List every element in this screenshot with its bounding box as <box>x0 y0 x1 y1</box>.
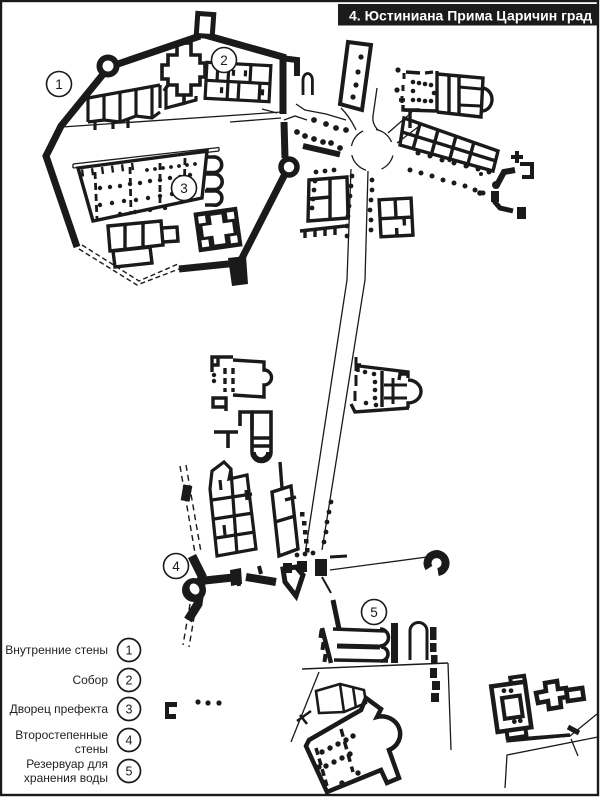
svg-text:2: 2 <box>220 53 228 68</box>
svg-text:3: 3 <box>180 181 188 196</box>
svg-text:хранения воды: хранения воды <box>24 771 108 785</box>
svg-text:2: 2 <box>126 674 133 688</box>
svg-text:1: 1 <box>55 77 63 92</box>
svg-text:Внутренние стены: Внутренние стены <box>5 643 108 657</box>
svg-text:4. Юстиниана Прима Царичин гра: 4. Юстиниана Прима Царичин град <box>349 8 592 24</box>
svg-text:5: 5 <box>126 765 133 779</box>
svg-text:4: 4 <box>126 734 133 748</box>
svg-text:1: 1 <box>126 644 133 658</box>
svg-text:Второстепенные: Второстепенные <box>15 728 108 742</box>
svg-text:Резервуар для: Резервуар для <box>26 757 108 771</box>
svg-text:Дворец префекта: Дворец префекта <box>10 702 109 716</box>
svg-text:3: 3 <box>126 703 133 717</box>
svg-text:стены: стены <box>75 742 108 756</box>
svg-text:4: 4 <box>172 559 180 574</box>
svg-text:5: 5 <box>370 605 378 620</box>
svg-text:Собор: Собор <box>72 673 108 687</box>
